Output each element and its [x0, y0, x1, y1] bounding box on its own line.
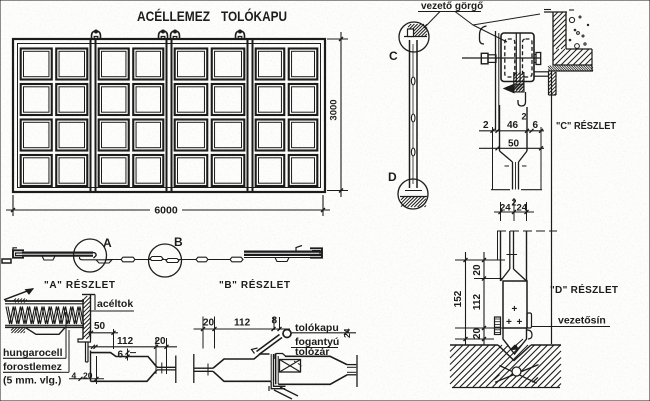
svg-text:D: D	[388, 170, 397, 184]
svg-text:vezetősín: vezetősín	[558, 315, 606, 327]
svg-text:A: A	[103, 236, 112, 250]
svg-text:112: 112	[472, 293, 483, 310]
svg-text:hungarocell: hungarocell	[3, 347, 63, 359]
svg-text:forostlemez: forostlemez	[3, 361, 62, 373]
svg-text:3000: 3000	[329, 99, 340, 120]
svg-text:C: C	[389, 49, 398, 63]
svg-text:6000: 6000	[154, 205, 178, 217]
svg-text:46: 46	[507, 120, 519, 131]
svg-text:112: 112	[117, 336, 134, 347]
svg-text:+: +	[512, 304, 518, 315]
svg-text:tolókapu: tolókapu	[295, 322, 339, 334]
svg-text:50: 50	[94, 321, 106, 332]
svg-text:acéltok: acéltok	[97, 298, 133, 310]
svg-text:2: 2	[522, 112, 527, 122]
svg-text:6: 6	[118, 350, 124, 361]
svg-text:2: 2	[483, 120, 489, 131]
svg-text:152: 152	[453, 290, 464, 307]
svg-text:"A" RÉSZLET: "A" RÉSZLET	[44, 278, 116, 291]
svg-text:vezető görgő: vezető görgő	[421, 1, 483, 12]
svg-text:(5 mm. vlg.): (5 mm. vlg.)	[3, 375, 61, 387]
svg-text:TOLÓKAPU: TOLÓKAPU	[221, 7, 287, 24]
svg-text:"B" RÉSZLET: "B" RÉSZLET	[219, 278, 291, 291]
svg-text:ACÉLLEMEZ: ACÉLLEMEZ	[137, 8, 210, 24]
svg-text:+: +	[517, 317, 523, 328]
svg-text:+: +	[506, 317, 512, 328]
svg-text:20: 20	[472, 264, 483, 276]
svg-text:112: 112	[234, 318, 251, 329]
svg-text:20: 20	[472, 328, 483, 340]
svg-text:B: B	[174, 235, 183, 249]
svg-text:"C" RÉSZLET: "C" RÉSZLET	[556, 119, 616, 132]
svg-text:"D" RÉSZLET: "D" RÉSZLET	[550, 283, 618, 296]
